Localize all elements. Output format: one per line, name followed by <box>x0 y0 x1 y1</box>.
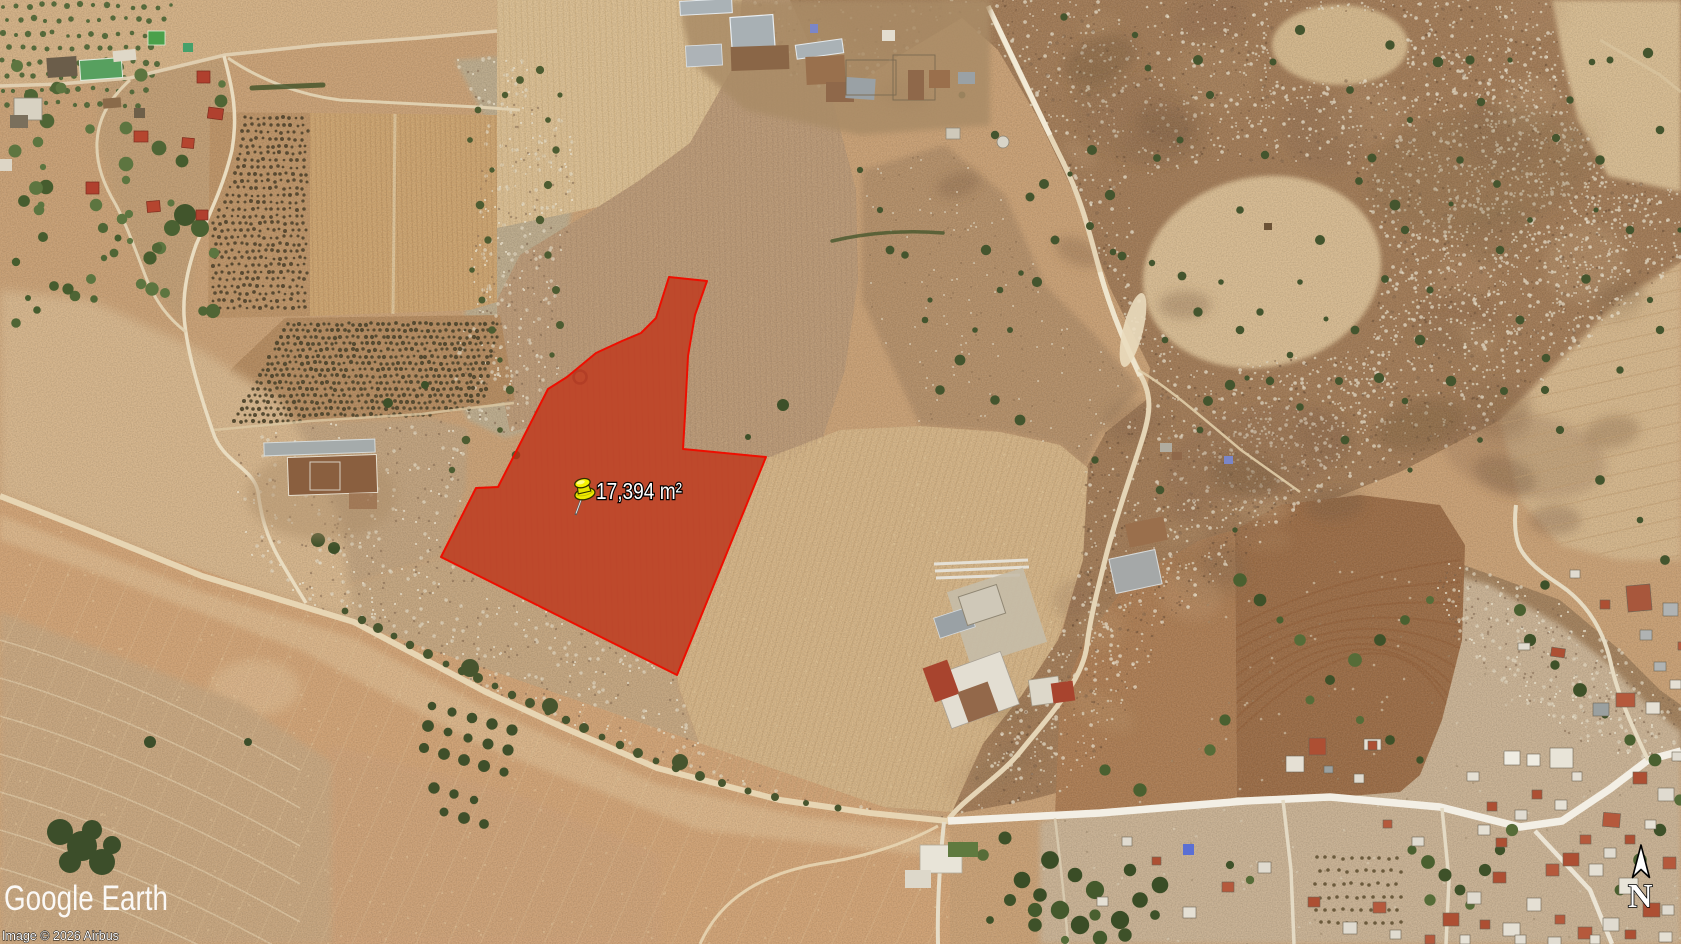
svg-text:N: N <box>1628 878 1653 915</box>
svg-text:Google Earth: Google Earth <box>4 879 168 918</box>
svg-text:17,394 m²: 17,394 m² <box>596 478 682 504</box>
svg-text:Image © 2026 Airbus: Image © 2026 Airbus <box>2 929 119 943</box>
